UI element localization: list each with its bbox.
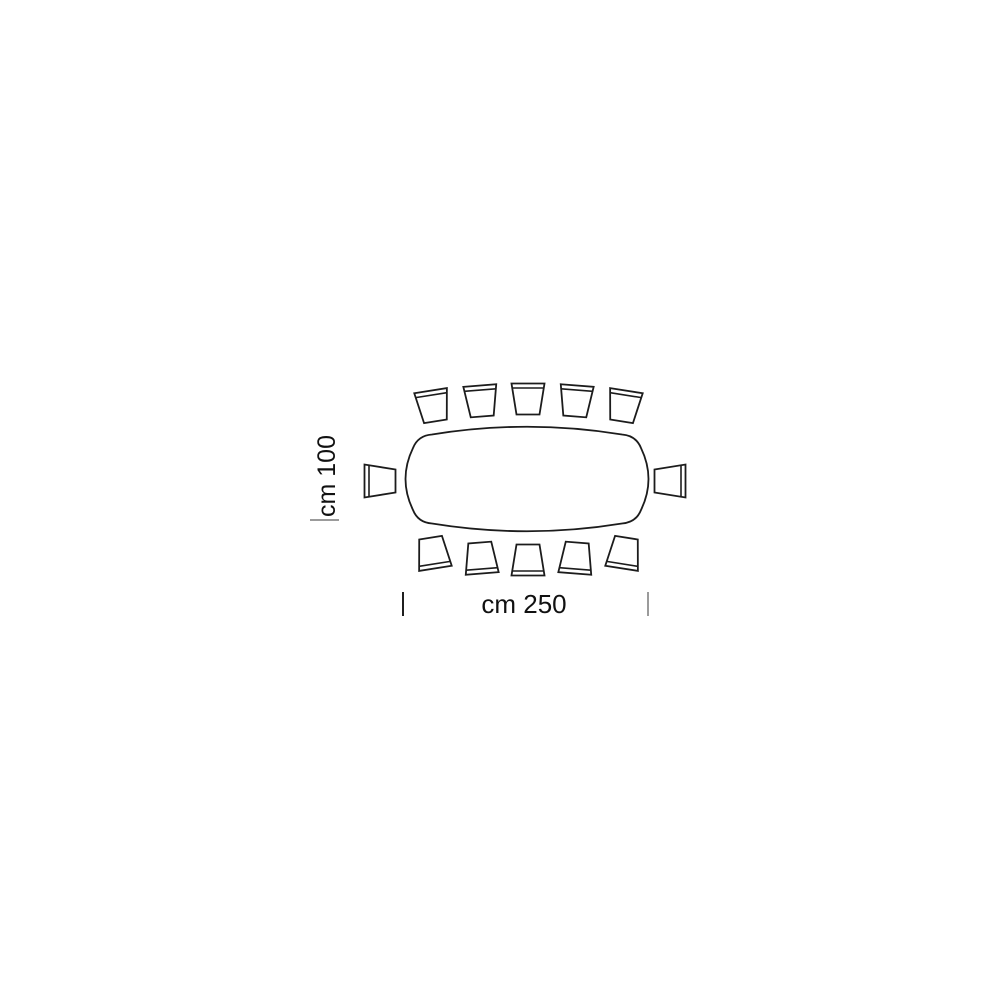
width-dimension-tick-right [647,592,649,616]
chair-bottom-5 [605,535,642,571]
chair-top-5 [605,388,642,424]
chair-top-3 [512,384,545,415]
chair-bottom-4 [558,541,593,574]
chair-top-1 [414,388,451,424]
chair-bottom-2 [463,541,498,574]
width-dimension-label: cm 250 [424,589,624,619]
table-outline [406,427,649,532]
chair-top-2 [463,384,498,417]
depth-dimension-label: cm 100 [312,416,342,536]
chair-top-4 [558,384,593,417]
chair-right-end [655,465,686,498]
width-dimension-tick-left [402,592,404,616]
chair-bottom-3 [512,545,545,576]
chair-bottom-1 [414,535,451,571]
table-plan-drawing [0,0,1000,1000]
chair-left-end [365,465,396,498]
